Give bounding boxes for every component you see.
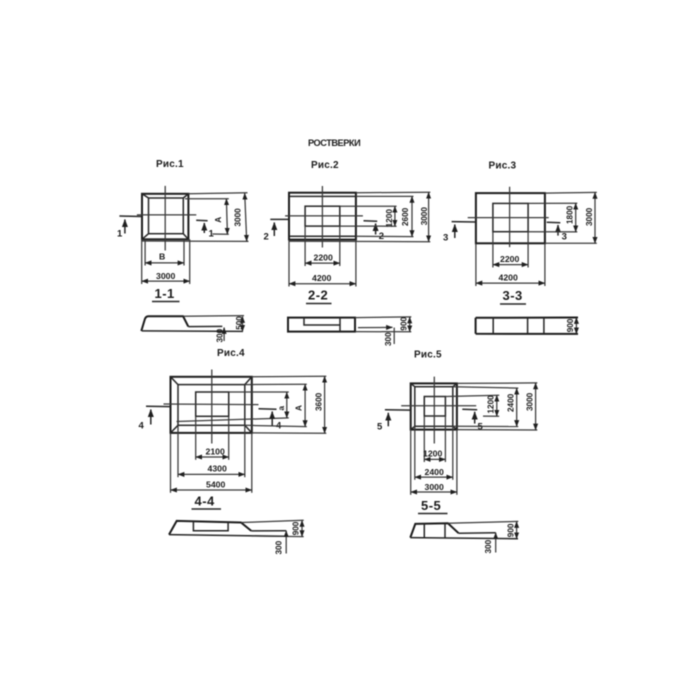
svg-text:Рис.5: Рис.5 bbox=[414, 350, 442, 361]
svg-text:300: 300 bbox=[274, 540, 283, 554]
svg-text:2: 2 bbox=[264, 232, 269, 243]
svg-text:В: В bbox=[159, 252, 165, 262]
svg-text:900: 900 bbox=[292, 521, 301, 535]
svg-text:2-2: 2-2 bbox=[308, 288, 328, 303]
svg-text:Рис.1: Рис.1 bbox=[156, 159, 184, 170]
svg-text:5-5: 5-5 bbox=[421, 498, 441, 513]
svg-text:а: а bbox=[277, 406, 286, 411]
svg-text:4: 4 bbox=[139, 421, 145, 432]
svg-text:300: 300 bbox=[215, 328, 224, 342]
svg-text:3000: 3000 bbox=[420, 207, 429, 226]
svg-text:900: 900 bbox=[566, 318, 575, 332]
svg-text:900: 900 bbox=[400, 316, 409, 330]
svg-text:500: 500 bbox=[235, 316, 244, 330]
svg-text:5400: 5400 bbox=[206, 480, 225, 490]
svg-text:300: 300 bbox=[384, 332, 393, 346]
svg-text:Рис.4: Рис.4 bbox=[217, 348, 245, 359]
svg-text:3000: 3000 bbox=[156, 271, 175, 281]
svg-text:2200: 2200 bbox=[314, 253, 333, 263]
svg-text:3000: 3000 bbox=[585, 207, 594, 226]
svg-text:1: 1 bbox=[117, 229, 123, 240]
svg-text:РОСТВЕРКИ: РОСТВЕРКИ bbox=[308, 138, 360, 148]
svg-text:2400: 2400 bbox=[425, 467, 444, 477]
svg-text:3000: 3000 bbox=[425, 482, 444, 492]
svg-text:3000: 3000 bbox=[525, 392, 534, 411]
svg-text:1800: 1800 bbox=[565, 205, 574, 224]
svg-text:1200: 1200 bbox=[487, 395, 496, 414]
svg-text:3600: 3600 bbox=[314, 392, 323, 411]
svg-text:3-3: 3-3 bbox=[503, 288, 523, 303]
svg-text:Рис.2: Рис.2 bbox=[311, 160, 339, 171]
svg-text:Рис.3: Рис.3 bbox=[489, 161, 517, 172]
svg-text:2100: 2100 bbox=[206, 447, 225, 457]
svg-text:4200: 4200 bbox=[499, 273, 518, 283]
svg-text:4300: 4300 bbox=[208, 464, 227, 474]
svg-text:А: А bbox=[214, 217, 223, 223]
svg-text:2200: 2200 bbox=[500, 254, 519, 264]
svg-text:5: 5 bbox=[377, 422, 383, 433]
svg-text:1200: 1200 bbox=[423, 449, 442, 459]
svg-text:900: 900 bbox=[506, 523, 515, 537]
svg-text:3: 3 bbox=[562, 232, 567, 243]
svg-text:4-4: 4-4 bbox=[195, 494, 216, 509]
svg-text:1-1: 1-1 bbox=[155, 286, 175, 301]
svg-text:300: 300 bbox=[484, 539, 493, 553]
svg-text:2400: 2400 bbox=[507, 393, 516, 412]
svg-text:3: 3 bbox=[443, 233, 448, 244]
svg-text:А: А bbox=[295, 405, 304, 411]
svg-text:2600: 2600 bbox=[401, 207, 410, 226]
svg-text:4200: 4200 bbox=[312, 273, 331, 283]
svg-text:3000: 3000 bbox=[233, 208, 242, 227]
svg-text:1200: 1200 bbox=[385, 209, 394, 228]
